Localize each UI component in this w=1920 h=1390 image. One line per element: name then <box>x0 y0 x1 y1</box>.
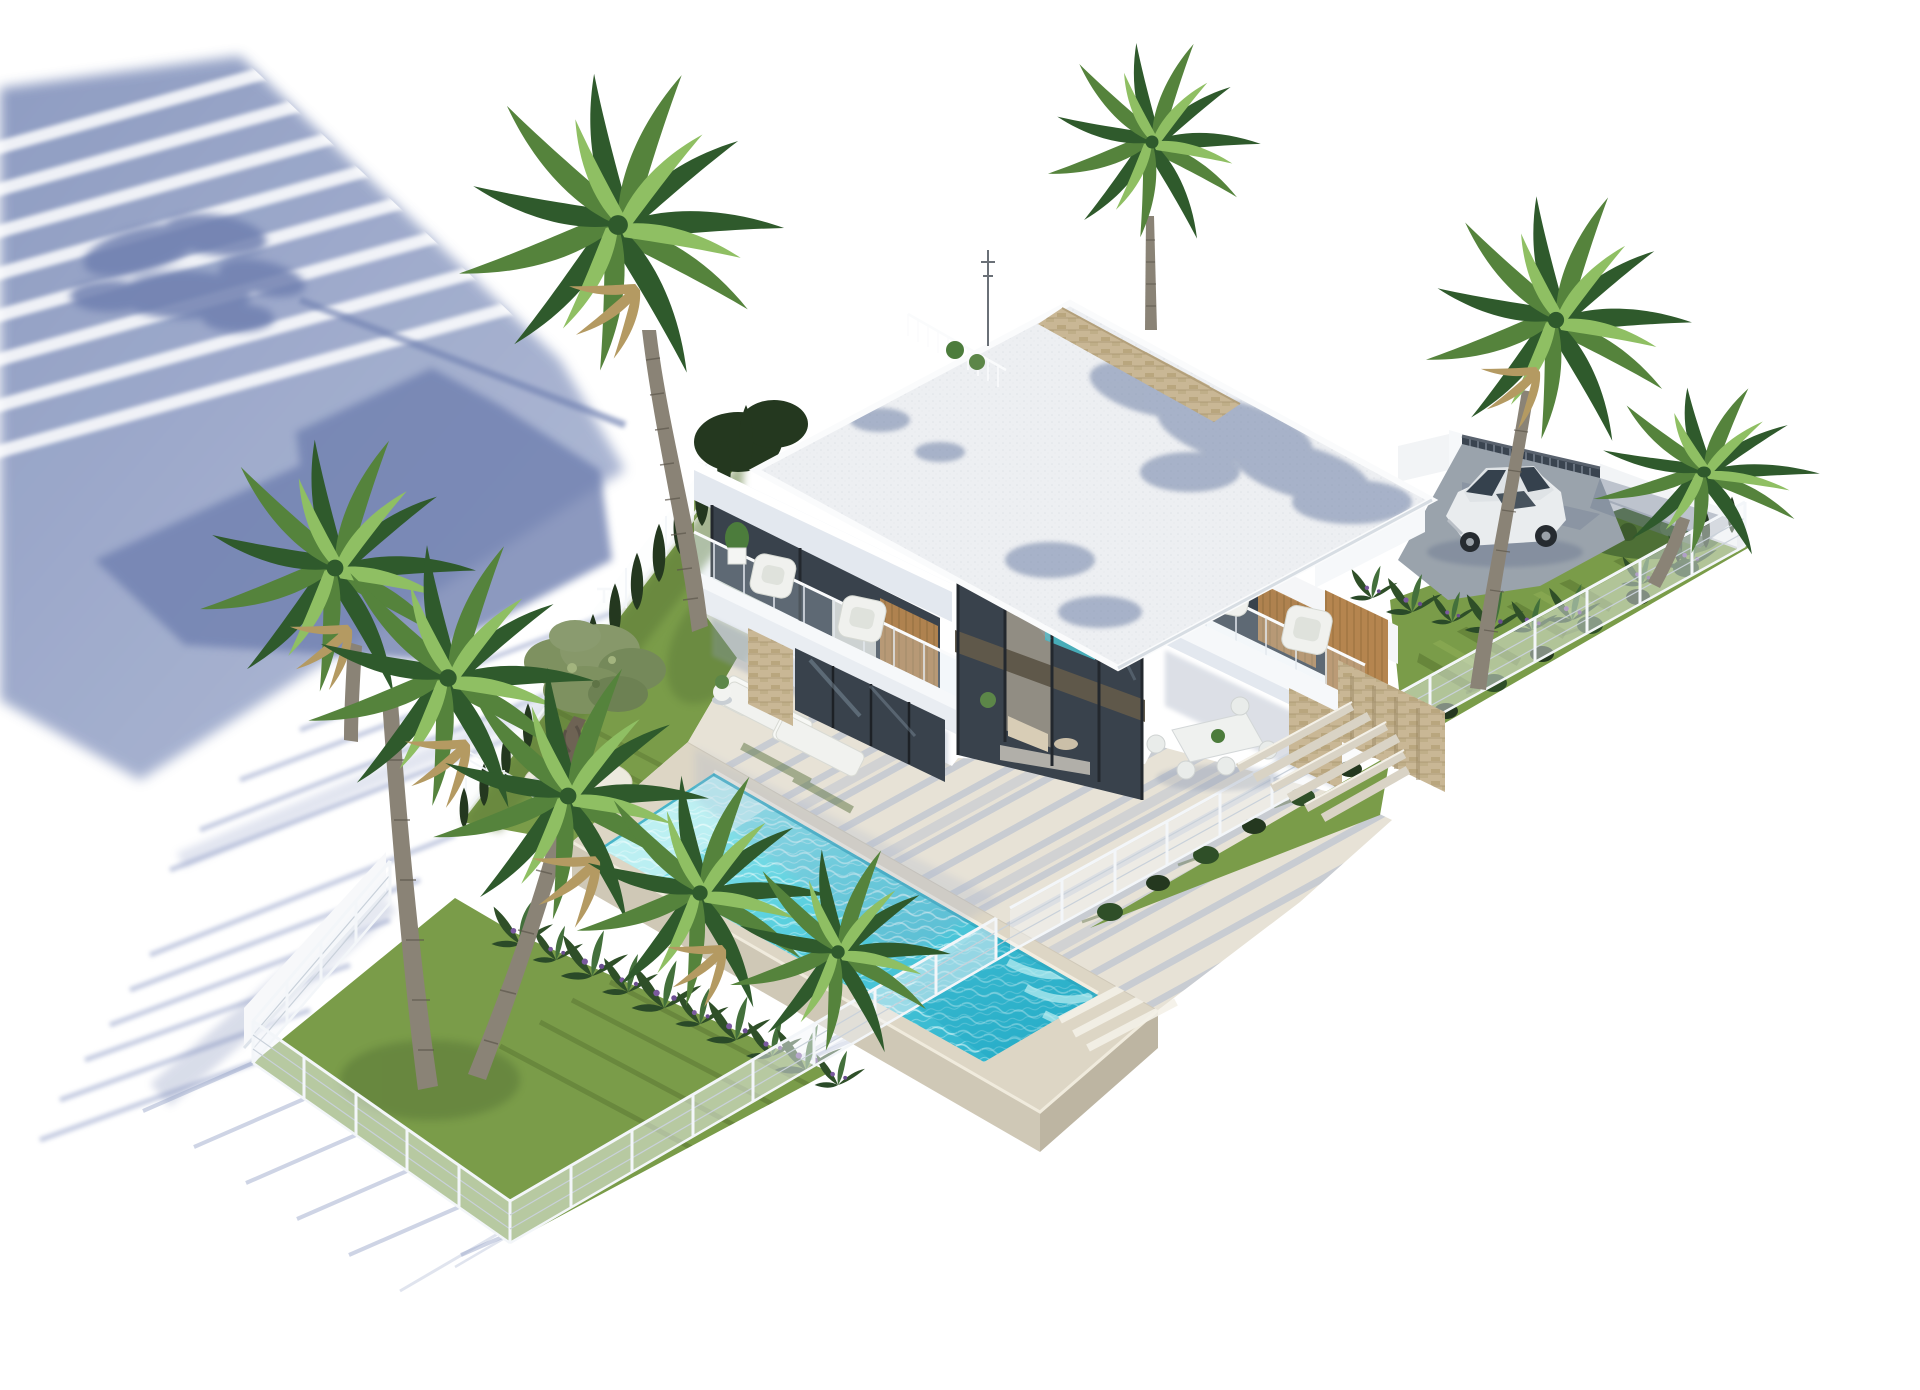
balcony-armchair <box>748 552 797 600</box>
dining-chair <box>1231 697 1249 715</box>
render-canvas <box>0 0 1920 1390</box>
dining-chair <box>1177 761 1195 779</box>
balcony-armchair <box>1280 604 1334 657</box>
dining-chair <box>1147 735 1165 753</box>
villa-aerial-render <box>0 0 1920 1390</box>
roof-shrub <box>946 341 964 359</box>
balcony-planter <box>725 522 749 564</box>
table-centerpiece <box>1211 729 1225 743</box>
roof-shrub <box>969 354 985 370</box>
balcony-armchair <box>836 594 888 644</box>
dining-chair <box>1217 757 1235 775</box>
interior-plant <box>980 692 996 708</box>
